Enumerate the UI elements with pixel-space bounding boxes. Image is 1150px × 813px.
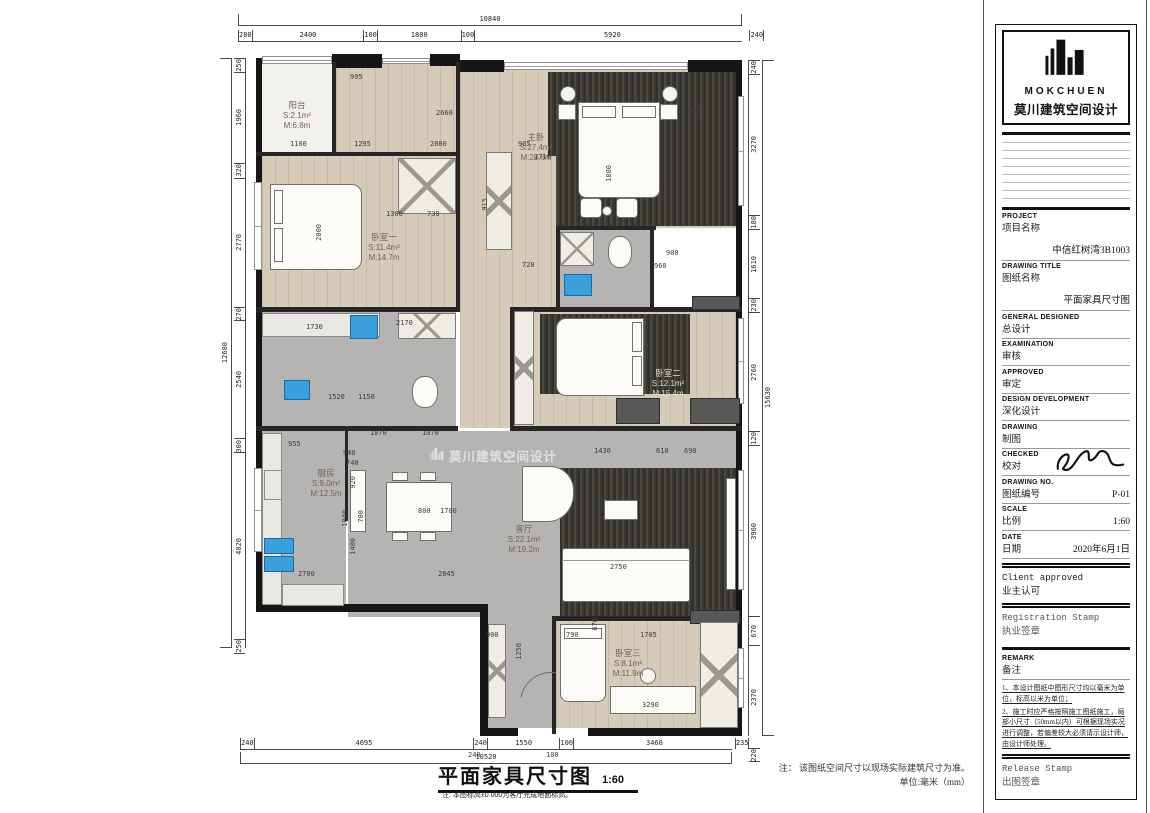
remark-item: 2、施工时应严格按照施工图纸施工，局部小尺寸（50mm以内）可根据现场实况进行调… [1002,707,1130,750]
interior-dim-label: 2170 [396,320,413,327]
field-approved: APPROVED审定 [1002,366,1130,394]
watermark-logo-icon [430,447,445,464]
field-drawing-title: DRAWING TITLE图纸名称平面家具尺寸图 [1002,261,1130,312]
field-label-en: DRAWING [1002,424,1130,431]
drawing-title-text: 平面家具尺寸图 [438,760,592,789]
room-area-m: M:14.7m [368,254,400,264]
field-label-cn: 比例 [1002,513,1021,527]
pillow [274,228,283,262]
dim-segment: 10840 [238,14,742,25]
plan-note-line2: 单位:毫米（mm） [690,776,970,790]
stamp-label-en: Client approved [1002,573,1130,583]
interior-dim-label: 800 [418,508,431,515]
field-value: 1:60 [1113,517,1130,527]
brand-name: MOKCHUEN [1008,86,1124,97]
field-value: P-01 [1112,490,1130,500]
dim-segment: 2760 [749,312,760,431]
dim-segment: 235 [735,738,750,749]
remark-items: 1、本设计图纸中图形尺寸均以毫米为单位，标高以米为单位；2、施工时应严格按照施工… [1002,683,1130,750]
room-area-s: S:2.1m² [283,111,311,121]
room-label: 卧室三S:8.1m²M:11.9m [613,648,644,680]
pillar [616,398,660,424]
room-name: 卧室一 [368,232,400,243]
sofa-seat-line [562,560,690,561]
dim-label: 230 [751,299,758,312]
dim-segment: 230 [749,298,760,312]
dim-segment: 3270 [749,74,760,215]
room-area-s: S:22.1m² [508,535,540,545]
dim-label: 2760 [751,364,758,381]
washing-machine [350,315,378,339]
room-area-m: M:19.2m [508,546,540,556]
dim-row-right-segments: 24032701801610230276012039606702370220 [748,60,760,736]
company-logo-icon [1044,65,1088,82]
title-block: MOKCHUEN 莫川建筑空间设计 PROJECT项目名称中信红树湾3B1003… [995,24,1137,800]
field-label-cn: 审核 [1002,348,1021,362]
dim-segment: 2540 [234,320,245,438]
dim-label: 2400 [300,32,317,41]
dim-segment: 240 [749,30,764,41]
room-label: 厨房S:9.0m²M:12.5m [310,468,341,500]
room-name: 卧室二 [652,368,684,379]
wall-top-block3 [458,60,504,72]
stamp-label-cn: 执业签章 [1002,623,1130,637]
dim-label: 240 [750,32,763,41]
interior-dim-label: 1300 [386,211,403,218]
dim-label: 10840 [479,16,500,25]
field-row: 比例1:60 [1002,513,1130,527]
interior-dim-label: 1295 [354,141,371,148]
remark-label-cn: 备注 [1002,662,1130,676]
dim-label: 250 [236,640,243,653]
wardrobe-corridor [486,152,512,250]
client-approved-stamp: Client approved 业主认可 [1002,570,1130,603]
toilet-bathroom [412,376,438,408]
drawing-sheet: 莫川建筑空间设计 10840 280240010018001005920240 … [0,0,1150,813]
room-area-m: M:6.8m [283,122,311,132]
interior-dim-label: 720 [522,262,535,269]
dim-label: 100 [364,32,377,41]
dim-segment: 120 [749,431,760,445]
interior-dim-label: 2700 [298,571,315,578]
nightstand [558,104,576,120]
dim-segment: 3460 [573,738,735,749]
armchair [616,198,638,218]
dim-label: 120 [751,432,758,445]
field-drawing: DRAWING制图 [1002,421,1130,449]
registration-stamp: Registration Stamp 执业签章 [1002,610,1130,647]
dim-segment: 1960 [234,72,245,163]
nightstand [660,104,678,120]
wardrobe-bedroom2 [514,311,534,425]
field-value: 2020年6月1日 [1073,541,1130,555]
dim-segment: 250 [234,639,245,654]
dim-segment: 220 [749,748,760,763]
room-label: 客厅S:22.1m²M:19.2m [508,524,540,556]
ruled-lines [1002,132,1130,203]
release-stamp: Release Stamp 出图签章 [1002,761,1130,794]
field-scale: SCALE比例1:60 [1002,504,1130,532]
dim-segment: 1800 [377,30,461,41]
dim-row-top-total: 10840 [238,14,742,26]
interior-dim-label: 1070 [422,430,439,437]
wall-top-block1 [332,54,382,68]
dim-segment: 280 [238,30,252,41]
dim-label: 1550 [515,740,532,749]
interior-dim-label: 3290 [642,702,659,709]
room-area-m: M:15.4m [652,390,684,400]
interior-dim-label: 480 [688,108,701,115]
dim-label: 1610 [751,256,758,273]
kitchen-counter-left [262,433,282,605]
dim-label: 180 [751,216,758,229]
wall-top-block4 [688,60,742,72]
dining-chair [392,532,408,541]
interior-dim-label: 1100 [290,141,307,148]
dining-chair [392,472,408,481]
field-general-designed: GENERAL DESIGNED总设计 [1002,311,1130,339]
stove [264,470,282,500]
tv-cabinet [726,478,736,590]
dim-segment: 5920 [474,30,749,41]
dim-label: 1800 [411,32,428,41]
dim-row-left-total: 12680 [220,58,232,648]
interior-dim-label: 995 [350,74,363,81]
section-bar [1002,754,1130,756]
field-label-cn: 深化设计 [1002,403,1040,417]
stamp-label-en: Registration Stamp [1002,613,1130,623]
window-top-mid [382,58,430,64]
interior-dim-label: 1800 [606,165,613,182]
dim-label: 250 [236,59,243,72]
field-row: 总设计 [1002,321,1130,335]
drawing-title-scale: 1:60 [602,774,624,786]
dim-segment: 4020 [234,452,245,639]
interior-dim-label: 940 [343,450,356,457]
armchair [580,198,602,218]
interior-dim-label: 1040 [342,510,349,527]
wall-bedroom1-top [256,152,460,156]
field-value: 平面家具尺寸图 [1002,292,1130,306]
interior-dim-label: 2080 [430,141,447,148]
dim-label: 5920 [604,32,621,41]
interior-dim-label: 1705 [640,632,657,639]
toilet-master-bath [608,236,632,268]
kitchen-sink [264,538,294,554]
field-drawing-no-: DRAWING NO.图纸编号P-01 [1002,476,1130,504]
dim-segment: 250 [234,58,245,72]
room-name: 客厅 [508,524,540,535]
field-row: 项目名称 [1002,220,1130,234]
dim-segment: 1610 [749,229,760,299]
field-label-en: PROJECT [1002,213,1130,220]
watermark-text: 莫川建筑空间设计 [449,446,557,465]
coffee-table [604,500,638,520]
interior-dim-label: 1250 [516,643,523,660]
dim-segment: 4695 [254,738,474,749]
plan-note: 注： 该图纸空间尺寸以现场实际建筑尺寸为准。 单位:毫米（mm） [690,762,970,789]
pillow [274,190,283,224]
interior-dim-label: 900 [486,632,499,639]
pillow [582,106,616,118]
dim-label: 3460 [646,740,663,749]
field-label-en: APPROVED [1002,369,1130,376]
dim-segment: 180 [749,215,760,229]
room-area-s: S:8.1m² [613,659,644,669]
interior-dim-label: 2750 [610,564,627,571]
wall-kitchen-right [345,431,348,521]
room-area-m: M:28.6m [520,154,552,164]
field-label-en: DESIGN DEVELOPMENT [1002,396,1130,403]
interior-dim-label: 730 [427,211,440,218]
window-right-bedroom2 [738,318,744,404]
room-area-m: M:11.9m [613,670,644,680]
field-date: DATE日期2020年6月1日 [1002,531,1130,559]
interior-dim-label: 1870 [370,430,387,437]
dining-chair [420,532,436,541]
dim-segment: 1550 [487,738,559,749]
interior-dim-label: 1400 [350,538,357,555]
sheet-divider-line [983,0,984,813]
field-row: 审定 [1002,376,1130,390]
side-table [602,206,612,216]
dim-label: 2540 [236,371,243,388]
dim-row-left-segments: 2501960320277027025403004020250 [234,58,246,648]
dim-row-bottom-segments: 240469524015501003460235 [240,738,732,750]
window-right-master [738,96,744,206]
dim-segment: 15630 [763,60,774,736]
interior-dim-label: 955 [288,441,301,448]
interior-dim-label: 2845 [438,571,455,578]
room-name: 主卧 [520,132,552,143]
window-right-bedroom3 [738,648,744,708]
dim-row-right-total: 15630 [762,60,774,736]
interior-dim-label: 920 [350,476,357,489]
stamp-label-cn: 出图签章 [1002,774,1130,788]
dim-segment: 2400 [252,30,364,41]
window-kitchen [254,468,262,552]
interior-dim-label: 670 [592,618,599,631]
dim-label: 320 [236,164,243,177]
field-label-cn: 校对 [1002,458,1021,472]
sink-bathroom [284,380,310,400]
pillar [690,398,740,424]
interior-dim-label: 1730 [306,324,323,331]
field-label-en: GENERAL DESIGNED [1002,314,1130,321]
stamp-label-cn: 业主认可 [1002,583,1130,597]
interior-dim-label: 1700 [440,508,457,515]
field-row: 图纸编号P-01 [1002,486,1130,500]
field-label-en: EXAMINATION [1002,341,1130,348]
wall-bedroom2-bottom [510,426,742,431]
dim-segment: 240 [473,738,487,749]
room-label: 主卧S:27.4m²M:28.6m [520,132,552,164]
dim-segment: 240 [749,60,760,74]
pillow [622,106,656,118]
room-name: 卧室三 [613,648,644,659]
dim-label: 4020 [236,538,243,555]
room-label: 卧室一S:11.4m²M:14.7m [368,232,400,264]
field-label-cn: 总设计 [1002,321,1031,335]
interior-dim-label: 100 [546,752,559,759]
dim-label: 670 [751,625,758,638]
dim-label: 240 [241,740,254,749]
field-value: 中信红树湾3B1003 [1002,242,1130,256]
room-name: 厨房 [310,468,341,479]
field-row: 图纸名称 [1002,270,1130,284]
field-row: 校对 [1002,458,1130,472]
wall-mid-left [256,307,460,312]
room-area-s: S:11.4m² [368,243,400,253]
field-examination: EXAMINATION审核 [1002,339,1130,367]
pendant-lamp [662,86,678,102]
remark-section: REMARK 备注 1、本设计图纸中图形尺寸均以毫米为单位，标高以米为单位；2、… [1002,650,1130,754]
remark-item: 1、本设计图纸中图形尺寸均以毫米为单位，标高以米为单位； [1002,683,1130,705]
field-checked: CHECKED校对 [1002,449,1130,477]
level-note: 注: 本图标高±0.000为客厅完成地面标高。 [442,790,572,800]
field-label-cn: 制图 [1002,431,1021,445]
field-label-en: SCALE [1002,506,1130,513]
dim-segment: 100 [363,30,377,41]
window-right-living [738,470,744,590]
kitchen-sink [264,556,294,572]
wardrobe-bedroom3 [700,622,738,728]
dim-label: 280 [239,32,252,41]
field-label-en: DATE [1002,534,1130,541]
dim-label: 100 [462,32,475,41]
sheet-edge-line [1146,0,1147,813]
dim-segment: 100 [559,738,573,749]
wall-mbath-top [556,226,656,230]
interior-dim-label: 700 [358,510,365,523]
dim-label: 300 [236,440,243,453]
dim-segment: 100 [461,30,475,41]
company-logo: MOKCHUEN 莫川建筑空间设计 [1002,30,1130,125]
dim-segment: 670 [749,616,760,645]
kitchen-counter-bottom [282,584,344,606]
interior-dim-label: 610 [656,448,669,455]
room-label: 卧室二S:12.1m²M:15.4m [652,368,684,400]
dim-segment: 300 [234,438,245,452]
plan-note-line1: 注： 该图纸空间尺寸以现场实际建筑尺寸为准。 [690,762,970,776]
interior-dim-label: 900 [666,250,679,257]
dim-row-top-segments: 280240010018001005920240 [238,30,742,42]
wardrobe-bedroom1 [398,158,456,214]
room-area-s: S:9.0m² [310,479,341,489]
interior-dim-label: 1150 [358,394,375,401]
dim-label: 1960 [236,109,243,126]
dim-label: 240 [474,740,487,749]
field-row: 日期2020年6月1日 [1002,541,1130,555]
remark-label-en: REMARK [1002,655,1130,662]
interior-dim-label: 240 [468,752,481,759]
field-label-cn: 图纸名称 [1002,270,1040,284]
title-block-fields: PROJECT项目名称中信红树湾3B1003DRAWING TITLE图纸名称平… [1002,210,1130,559]
room-name: 阳台 [283,100,311,111]
field-label-cn: 日期 [1002,541,1021,555]
pillow [632,322,642,352]
dim-label: 240 [751,61,758,74]
wall-balcony-right [332,62,336,156]
interior-dim-label: 790 [566,632,579,639]
interior-dim-label: 915 [482,198,489,211]
dim-label: 220 [751,749,758,762]
dim-label: 3270 [751,136,758,153]
interior-dim-label: 960 [654,263,667,270]
brand-name-cn: 莫川建筑空间设计 [1008,99,1124,118]
shower-master-bath [560,232,594,266]
dim-segment: 2770 [234,178,245,307]
field-label-en: DRAWING NO. [1002,479,1130,486]
field-label-cn: 项目名称 [1002,220,1040,234]
dim-segment: 240 [240,738,254,749]
field-label-cn: 图纸编号 [1002,486,1040,500]
dim-label: 3960 [751,523,758,540]
sink-master-bath [564,274,592,296]
pillow [632,356,642,386]
interior-dim-label: 1430 [594,448,611,455]
field-design-development: DESIGN DEVELOPMENT深化设计 [1002,394,1130,422]
interior-dim-label: 2660 [436,110,453,117]
checked-signature [1044,446,1130,476]
section-bar [1002,603,1130,605]
room-area-s: S:12.1m² [652,379,684,389]
interior-dim-label: 690 [684,448,697,455]
desk-bedroom3 [610,686,696,714]
dim-label: 2370 [751,689,758,706]
dim-segment: 270 [234,307,245,321]
field-project: PROJECT项目名称中信红树湾3B1003 [1002,210,1130,261]
stamp-label-en: Release Stamp [1002,764,1130,774]
window-bedroom1 [254,182,262,270]
dim-label: 12680 [222,342,229,363]
dim-label: 15630 [765,387,772,408]
sofa [562,548,690,602]
field-row: 深化设计 [1002,403,1130,417]
pillar [692,296,740,310]
field-label-en: DRAWING TITLE [1002,263,1130,270]
dim-segment: 2370 [749,645,760,748]
dim-segment: 12680 [220,58,231,648]
dim-segment: 320 [234,163,245,178]
dim-segment: 3960 [749,445,760,616]
dim-label: 235 [736,740,749,749]
dim-label: 4695 [356,740,373,749]
bed-bedroom2 [556,318,644,396]
field-label-cn: 审定 [1002,376,1021,390]
window-balcony [262,56,332,64]
room-area-s: S:27.4m² [520,143,552,153]
dim-label: 270 [236,308,243,321]
field-row: 审核 [1002,348,1130,362]
dim-label: 100 [560,740,573,749]
window-master [504,62,688,70]
pendant-lamp [560,86,576,102]
grand-piano [522,466,574,522]
dining-chair [420,472,436,481]
dim-label: 2770 [236,234,243,251]
interior-dim-label: 740 [346,460,359,467]
wall-step [480,604,488,736]
room-label: 阳台S:2.1m²M:6.8m [283,100,311,132]
watermark: 莫川建筑空间设计 [430,446,557,465]
section-bar [1002,563,1130,565]
wall-corridor-left [456,62,460,312]
drawing-title-bottom: 平面家具尺寸图 1:60 [438,760,638,793]
field-row: 制图 [1002,431,1130,445]
interior-dim-label: 1520 [328,394,345,401]
interior-dim-label: 2000 [316,224,323,241]
